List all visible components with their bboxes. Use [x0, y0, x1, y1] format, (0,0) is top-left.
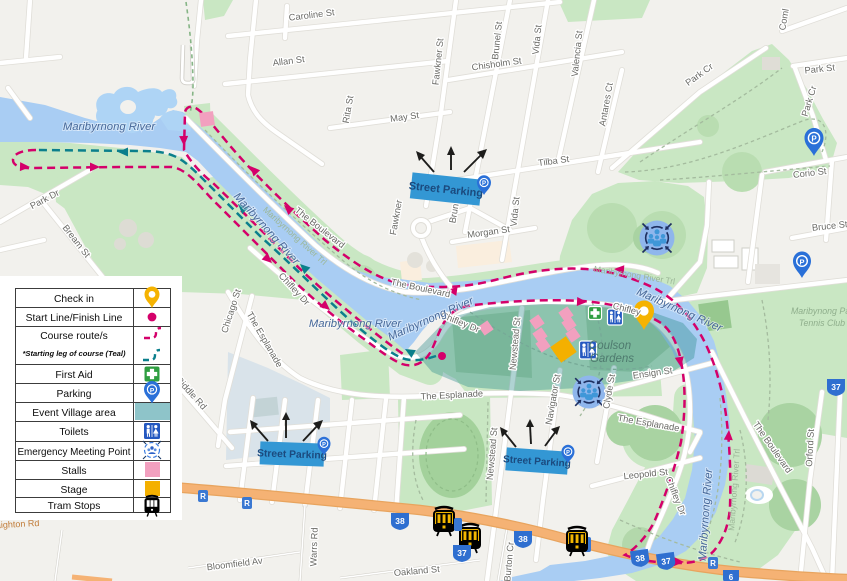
- svg-text:Emergency Meeting Point: Emergency Meeting Point: [17, 447, 130, 458]
- svg-text:P: P: [799, 258, 804, 267]
- svg-text:Check in: Check in: [54, 294, 94, 305]
- svg-text:Tennis Club: Tennis Club: [799, 318, 845, 328]
- svg-text:Start Line/Finish Line: Start Line/Finish Line: [26, 313, 123, 324]
- svg-text:37: 37: [457, 548, 467, 558]
- svg-text:Orford St: Orford St: [804, 428, 816, 467]
- svg-text:Toilets: Toilets: [59, 427, 88, 438]
- svg-text:38: 38: [518, 534, 528, 544]
- svg-text:Maribyrnong River: Maribyrnong River: [309, 318, 403, 330]
- svg-text:Stage: Stage: [61, 485, 88, 496]
- svg-text:38: 38: [635, 553, 646, 564]
- svg-text:P: P: [150, 387, 155, 394]
- svg-text:Gardens: Gardens: [590, 353, 634, 365]
- svg-text:Course route/s: Course route/s: [40, 331, 108, 342]
- svg-text:Warrs Rd: Warrs Rd: [308, 527, 319, 566]
- svg-text:Parking: Parking: [57, 389, 92, 400]
- svg-text:First Aid: First Aid: [55, 370, 92, 381]
- svg-text:Stalls: Stalls: [61, 466, 86, 477]
- svg-text:Coulson: Coulson: [589, 340, 631, 352]
- svg-text:*Starting leg of course (Teal): *Starting leg of course (Teal): [22, 349, 126, 358]
- svg-text:P: P: [322, 442, 326, 448]
- svg-text:37: 37: [661, 556, 672, 567]
- svg-text:Maribynong Par: Maribynong Par: [791, 306, 847, 316]
- svg-text:Event Village area: Event Village area: [32, 408, 116, 419]
- svg-text:P: P: [811, 135, 817, 144]
- svg-text:Tram Stops: Tram Stops: [48, 501, 101, 512]
- svg-text:R: R: [710, 559, 716, 568]
- svg-text:38: 38: [395, 516, 405, 526]
- svg-text:P: P: [482, 181, 486, 187]
- svg-text:R: R: [244, 499, 250, 508]
- svg-text:Maribyrnong River: Maribyrnong River: [63, 121, 157, 133]
- svg-text:6: 6: [729, 573, 734, 581]
- svg-text:37: 37: [831, 382, 841, 392]
- svg-text:P: P: [566, 450, 570, 456]
- svg-text:R: R: [200, 492, 206, 501]
